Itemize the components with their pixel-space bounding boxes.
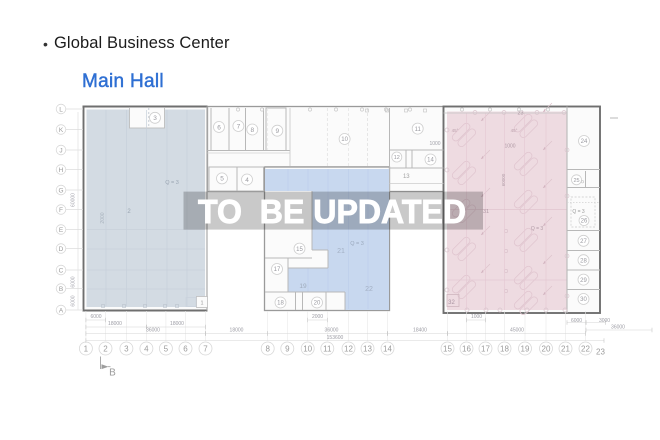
svg-text:45°: 45° — [452, 128, 459, 133]
svg-text:Q = 3: Q = 3 — [572, 209, 585, 215]
svg-text:1000: 1000 — [471, 314, 482, 320]
svg-text:153600: 153600 — [327, 335, 344, 341]
svg-text:G: G — [58, 187, 63, 194]
svg-text:45°: 45° — [511, 128, 518, 133]
svg-text:20: 20 — [542, 344, 551, 353]
svg-text:22: 22 — [365, 286, 373, 293]
svg-text:27: 27 — [580, 239, 587, 245]
svg-text:36000: 36000 — [611, 325, 625, 331]
svg-text:60000: 60000 — [71, 193, 77, 207]
svg-text:5: 5 — [220, 176, 224, 183]
svg-text:15: 15 — [443, 344, 452, 353]
svg-text:18000: 18000 — [170, 321, 184, 327]
svg-text:1: 1 — [84, 344, 89, 353]
svg-text:36000: 36000 — [146, 328, 160, 334]
svg-text:J: J — [59, 147, 62, 154]
svg-text:1000: 1000 — [504, 144, 515, 150]
svg-text:1: 1 — [200, 301, 203, 307]
svg-text:Q = 3: Q = 3 — [531, 226, 544, 232]
svg-text:18000: 18000 — [108, 321, 122, 327]
svg-text:B: B — [59, 286, 63, 293]
svg-text:Q = 3: Q = 3 — [350, 241, 364, 247]
svg-text:22: 22 — [581, 344, 590, 353]
svg-text:6000: 6000 — [71, 295, 77, 306]
svg-text:3: 3 — [153, 115, 157, 122]
svg-text:18400: 18400 — [413, 328, 427, 334]
svg-text:30: 30 — [580, 297, 587, 303]
svg-text:23: 23 — [596, 348, 605, 357]
svg-text:21: 21 — [337, 248, 345, 255]
svg-text:26: 26 — [581, 219, 588, 225]
svg-text:3000: 3000 — [599, 318, 610, 324]
svg-text:23: 23 — [517, 111, 523, 117]
svg-text:13: 13 — [363, 344, 372, 353]
svg-text:10: 10 — [303, 344, 312, 353]
svg-text:14: 14 — [383, 344, 392, 353]
svg-text:15: 15 — [296, 247, 303, 253]
svg-text:29: 29 — [580, 278, 587, 284]
svg-text:F: F — [59, 207, 63, 214]
svg-text:28: 28 — [580, 258, 587, 264]
svg-text:7: 7 — [203, 344, 208, 353]
svg-text:H: H — [59, 167, 64, 174]
svg-text:8: 8 — [250, 127, 254, 134]
svg-text:19: 19 — [299, 283, 307, 290]
svg-text:60000: 60000 — [501, 173, 506, 186]
svg-text:20: 20 — [314, 301, 321, 307]
svg-text:9: 9 — [285, 344, 290, 353]
svg-text:6000: 6000 — [571, 318, 582, 324]
svg-text:24: 24 — [581, 139, 588, 145]
svg-text:17: 17 — [481, 344, 490, 353]
svg-text:18000: 18000 — [230, 328, 244, 334]
svg-text:6000: 6000 — [90, 314, 101, 320]
svg-text:12: 12 — [394, 155, 400, 161]
svg-text:TO BE UPDATED: TO BE UPDATED — [198, 193, 466, 230]
svg-text:1000: 1000 — [429, 141, 440, 147]
svg-text:L: L — [59, 106, 63, 113]
svg-text:21: 21 — [561, 344, 570, 353]
svg-text:36000: 36000 — [325, 328, 339, 334]
svg-text:8: 8 — [265, 344, 270, 353]
svg-text:B: B — [109, 368, 116, 379]
svg-text:K: K — [59, 127, 64, 134]
svg-text:7: 7 — [237, 123, 241, 130]
svg-text:18: 18 — [277, 301, 284, 307]
svg-text:9: 9 — [275, 128, 279, 135]
svg-text:2: 2 — [103, 344, 108, 353]
svg-text:2000: 2000 — [100, 212, 106, 223]
svg-text:25: 25 — [573, 178, 579, 184]
svg-text:11: 11 — [415, 127, 422, 133]
svg-text:12: 12 — [344, 344, 353, 353]
svg-text:Q = 3: Q = 3 — [165, 180, 179, 186]
svg-text:C: C — [59, 267, 64, 274]
svg-text:19: 19 — [521, 344, 530, 353]
svg-text:5: 5 — [164, 344, 169, 353]
svg-text:3: 3 — [124, 344, 129, 353]
svg-text:45000: 45000 — [510, 328, 524, 334]
svg-text:16: 16 — [462, 344, 471, 353]
svg-text:32: 32 — [448, 300, 455, 306]
svg-text:14: 14 — [427, 158, 434, 164]
svg-text:E: E — [59, 227, 64, 234]
svg-text:2000: 2000 — [312, 314, 323, 320]
svg-text:17: 17 — [274, 267, 281, 273]
svg-text:6: 6 — [183, 344, 188, 353]
svg-text:11: 11 — [323, 344, 332, 353]
svg-text:31: 31 — [483, 209, 489, 215]
svg-text:6000: 6000 — [71, 276, 77, 287]
svg-text:A: A — [59, 307, 64, 314]
svg-text:4: 4 — [144, 344, 149, 353]
svg-text:D: D — [59, 246, 64, 253]
svg-text:10: 10 — [341, 137, 348, 143]
svg-text:13: 13 — [403, 174, 410, 180]
svg-text:6: 6 — [217, 124, 221, 131]
svg-text:4: 4 — [245, 177, 249, 184]
svg-text:18: 18 — [500, 344, 509, 353]
